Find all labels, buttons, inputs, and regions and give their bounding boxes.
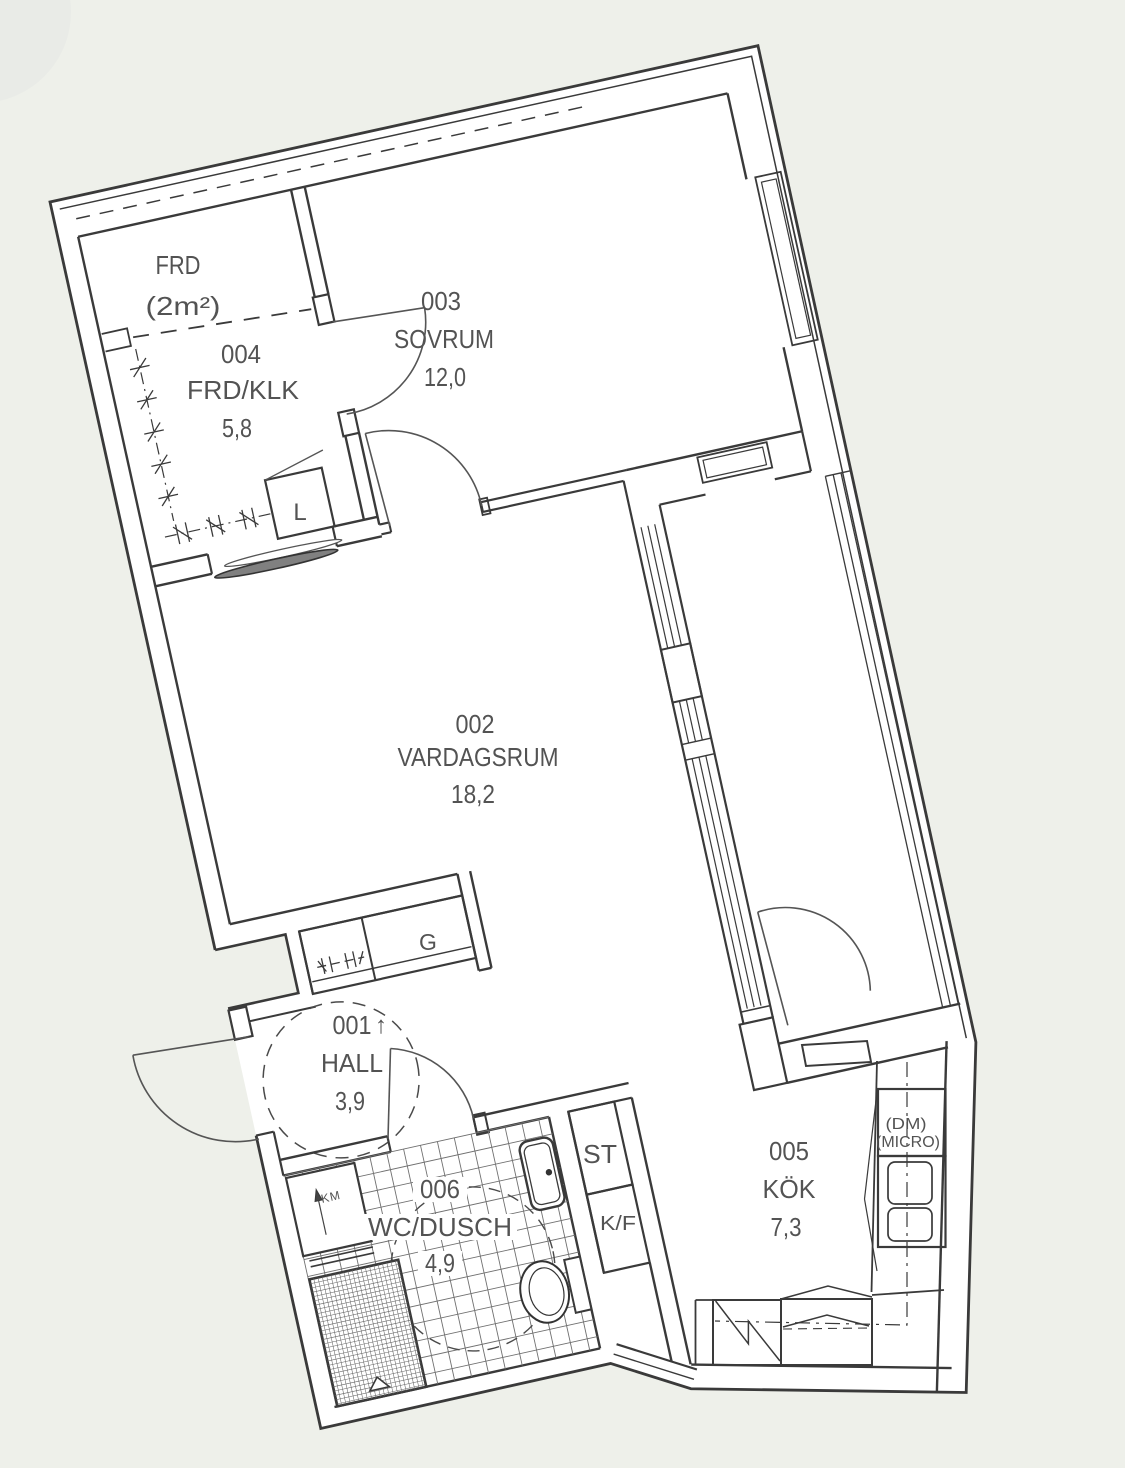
svg-text:003: 003 (421, 286, 461, 316)
svg-text:006: 006 (420, 1174, 460, 1204)
svg-text:FRD/KLK: FRD/KLK (187, 375, 300, 405)
svg-text:FRD: FRD (156, 250, 201, 280)
svg-text:↑: ↑ (375, 1012, 387, 1039)
svg-text:VARDAGSRUM: VARDAGSRUM (398, 742, 559, 772)
svg-text:7,3: 7,3 (771, 1212, 802, 1242)
svg-text:004: 004 (221, 339, 261, 369)
svg-text:001: 001 (333, 1010, 372, 1040)
svg-text:002: 002 (456, 709, 495, 739)
svg-text:4,9: 4,9 (425, 1248, 455, 1278)
svg-text:5,8: 5,8 (222, 413, 252, 443)
svg-text:ST: ST (583, 1139, 617, 1169)
svg-text:(MICRO): (MICRO) (876, 1134, 940, 1151)
svg-text:005: 005 (769, 1136, 809, 1166)
svg-text:3,9: 3,9 (335, 1086, 365, 1116)
svg-text:(2m²): (2m²) (146, 291, 221, 321)
svg-text:KÖK: KÖK (763, 1174, 817, 1204)
svg-text:WC/DUSCH: WC/DUSCH (368, 1212, 512, 1242)
svg-text:K/F: K/F (600, 1213, 636, 1235)
svg-text:(DM): (DM) (886, 1116, 927, 1133)
svg-text:12,0: 12,0 (424, 362, 466, 392)
svg-text:SOVRUM: SOVRUM (394, 324, 494, 354)
svg-text:L: L (293, 499, 306, 526)
svg-text:G: G (419, 929, 437, 955)
svg-text:18,2: 18,2 (451, 779, 495, 809)
svg-text:HALL: HALL (321, 1048, 383, 1078)
